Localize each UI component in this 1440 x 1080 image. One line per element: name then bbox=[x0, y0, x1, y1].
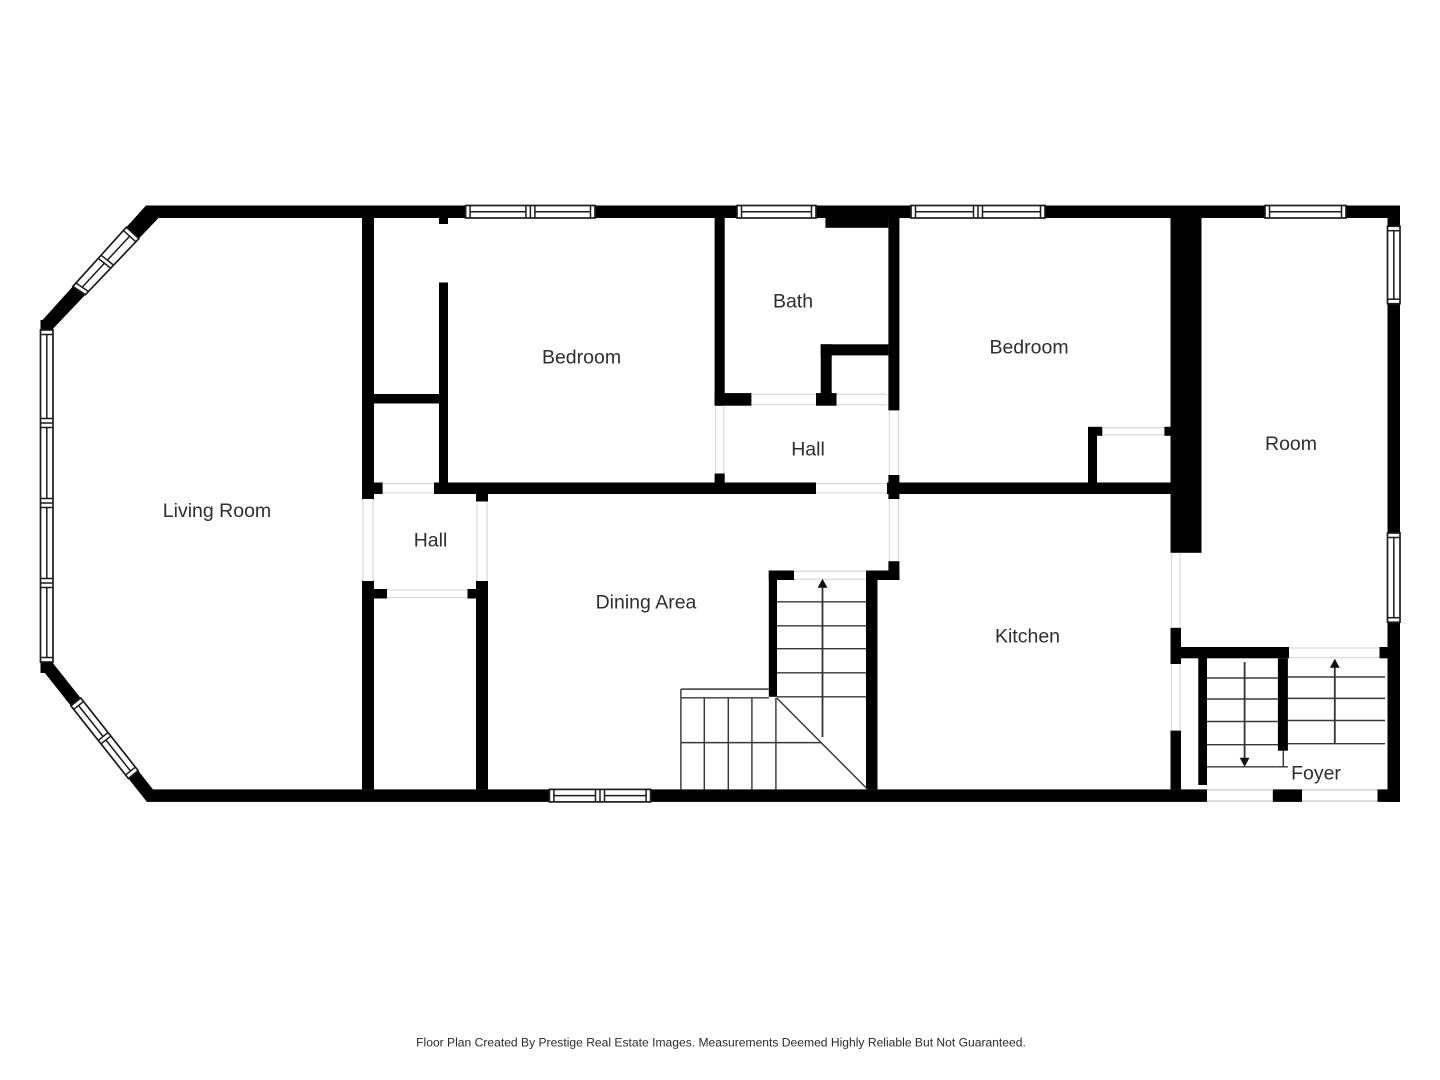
svg-text:Bedroom: Bedroom bbox=[542, 347, 621, 369]
svg-text:Kitchen: Kitchen bbox=[995, 626, 1060, 648]
svg-text:Living Room: Living Room bbox=[163, 500, 271, 522]
svg-text:Bedroom: Bedroom bbox=[989, 337, 1068, 359]
svg-text:Bath: Bath bbox=[773, 291, 813, 313]
svg-text:Foyer: Foyer bbox=[1291, 763, 1341, 785]
svg-text:Dining Area: Dining Area bbox=[596, 592, 697, 614]
svg-text:Room: Room bbox=[1265, 433, 1317, 455]
svg-text:Hall: Hall bbox=[791, 439, 825, 461]
svg-text:Floor Plan Created By Prestige: Floor Plan Created By Prestige Real Esta… bbox=[416, 1036, 1026, 1050]
svg-text:Hall: Hall bbox=[414, 530, 448, 552]
